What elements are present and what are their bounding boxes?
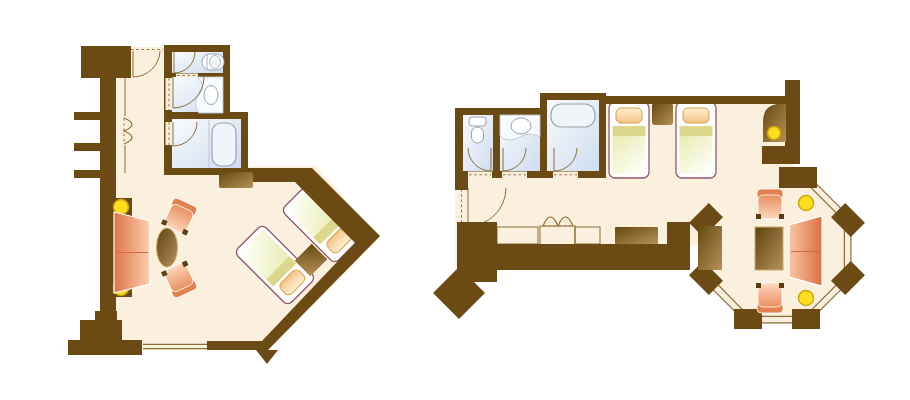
- coffee-table: [157, 228, 178, 267]
- armchair: [756, 189, 784, 219]
- floorplans-canvas: [0, 0, 910, 400]
- wall-stub: [74, 112, 101, 120]
- right-floorplan: [433, 80, 865, 329]
- desk-lamp: [768, 127, 781, 140]
- mattress: [613, 136, 646, 174]
- wall-stub: [74, 170, 101, 178]
- floor-lamp: [799, 196, 814, 211]
- left-floorplan: [68, 45, 380, 364]
- corner-pier: [68, 340, 142, 355]
- toilet-bowl: [472, 127, 484, 143]
- bed: [676, 102, 716, 178]
- bay-pier: [779, 167, 817, 188]
- toilet-tank: [469, 117, 486, 126]
- console-cabinet: [219, 172, 253, 188]
- top-wall: [600, 96, 795, 104]
- nightstand: [652, 103, 673, 125]
- bed: [609, 102, 649, 178]
- armrest-tip: [756, 283, 761, 288]
- wall-notch: [256, 350, 278, 364]
- sink: [511, 118, 531, 134]
- armrest-tip: [779, 283, 784, 288]
- corner-pillar: [667, 222, 690, 270]
- toilet-bowl: [210, 56, 221, 69]
- pillow: [616, 108, 642, 123]
- wall-stub: [74, 143, 101, 151]
- floorplan-image: [0, 0, 910, 400]
- blanket-band: [613, 126, 646, 136]
- floor-lamp: [799, 291, 814, 306]
- corner-pier: [80, 320, 122, 341]
- entry-wall-block: [81, 46, 131, 78]
- dresser: [615, 227, 658, 244]
- bathtub: [551, 104, 595, 127]
- chair-seat: [758, 195, 782, 219]
- chair-seat: [758, 283, 782, 307]
- coffee-table: [755, 227, 783, 270]
- sink: [204, 86, 218, 105]
- tv-console: [698, 226, 722, 270]
- mattress: [680, 136, 713, 174]
- blanket-band: [680, 126, 713, 136]
- pillow: [683, 108, 709, 123]
- bay-pier: [792, 309, 820, 329]
- armchair: [756, 283, 784, 313]
- bathtub: [212, 123, 236, 166]
- armrest-tip: [756, 214, 761, 219]
- bottom-wall: [457, 244, 690, 270]
- armrest-tip: [779, 214, 784, 219]
- wall-jut: [762, 146, 800, 164]
